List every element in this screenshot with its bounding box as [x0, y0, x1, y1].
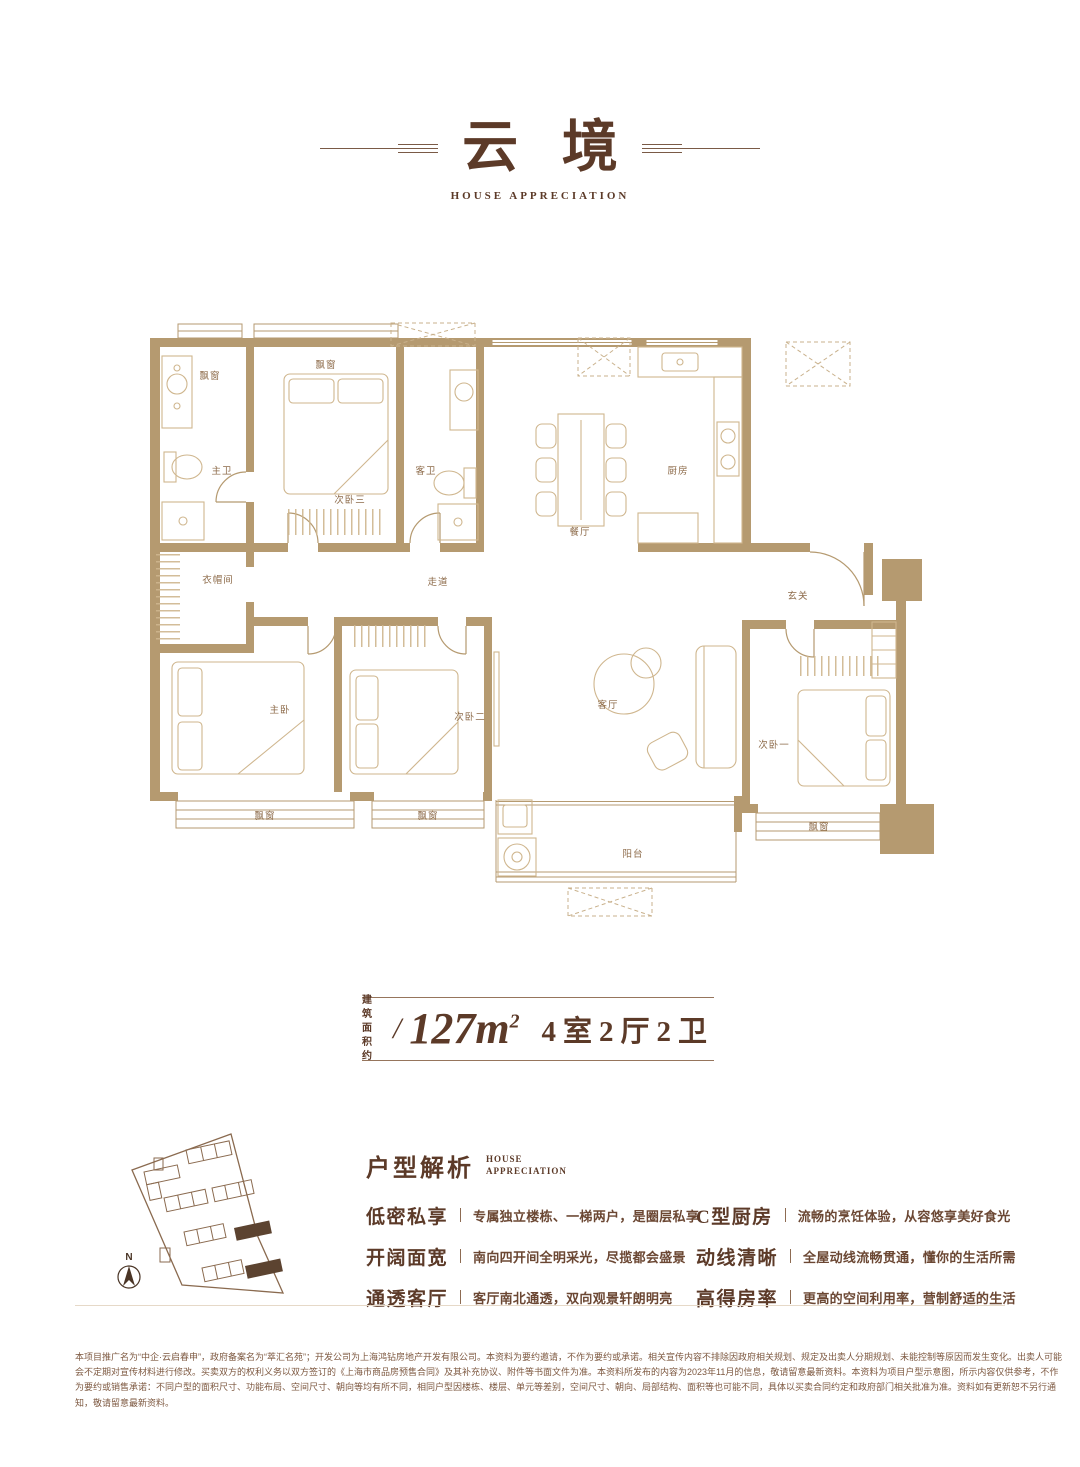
feature-item: C型厨房 流畅的烹饪体验，从容悠享美好食光	[696, 1203, 996, 1227]
page-title: 云境	[462, 118, 661, 180]
title-block: 云境 HOUSE APPRECIATION	[0, 118, 1080, 202]
floor-plan-walls	[150, 338, 934, 854]
title-decoration-left	[320, 144, 438, 153]
room-label-kitchen: 厨房	[667, 465, 688, 477]
triple-bar-icon	[398, 144, 438, 153]
room-label-bay-window: 飘窗	[808, 821, 829, 833]
room-label-guest-bath: 客卫	[415, 465, 436, 477]
analysis-title: 户型解析	[366, 1148, 474, 1183]
disclaimer-line: 会不定期对宣传材料进行修改。买卖双方的权利义务以双方签订的《上海市商品房预售合同…	[75, 1365, 1007, 1380]
site-plan: N	[90, 1120, 308, 1315]
site-buildings-outline	[144, 1141, 254, 1282]
room-label-foyer: 玄关	[787, 590, 808, 602]
site-buildings-highlighted	[234, 1221, 283, 1279]
disclaimer-line: 知，敬请留意最新资料。	[75, 1396, 1007, 1411]
room-label-bedroom1: 次卧一	[758, 739, 790, 751]
room-label-master-bedroom: 主卧	[269, 704, 290, 716]
room-label-bay-window: 飘窗	[199, 370, 220, 382]
door-arcs	[216, 472, 864, 657]
room-label-bay-window: 飘窗	[315, 359, 336, 371]
disclaimer: 本项目推广名为“中企·云启春申”，政府备案名为“萃汇名苑”；开发公司为上海鸿钻房…	[75, 1350, 1007, 1411]
unit-layout: 4室2厅2卫	[541, 1008, 714, 1050]
disclaimer-line: 本项目推广名为“中企·云启春申”，政府备案名为“萃汇名苑”；开发公司为上海鸿钻房…	[75, 1350, 1007, 1365]
area-banner: 建筑 面积约 / 127m2 4室2厅2卫	[362, 997, 714, 1061]
floor-plan-window-lines	[176, 331, 880, 882]
room-label-dining: 餐厅	[569, 526, 590, 538]
feature-item: 开阔面宽 南向四开间全明采光，尽揽都会盛景	[366, 1244, 696, 1268]
room-label-bay-window: 飘窗	[254, 810, 275, 822]
analysis-section: 户型解析 HOUSE APPRECIATION 低密私享 专属独立楼栋、一梯两户…	[366, 1148, 1006, 1309]
disclaimer-line: 为要约或销售承诺：不同户型的面积尺寸、功能布局、空间尺寸、朝向等均有所不同，相同…	[75, 1380, 1007, 1395]
room-label-master-bath: 主卫	[211, 465, 232, 477]
poster-page: 云境 HOUSE APPRECIATION	[0, 0, 1080, 1467]
bottom-divider	[75, 1305, 1005, 1306]
area-value: 127m2	[409, 1007, 519, 1051]
title-decoration-right	[642, 144, 760, 153]
analysis-header: 户型解析 HOUSE APPRECIATION	[366, 1148, 1006, 1183]
room-label-living: 客厅	[597, 699, 618, 711]
feature-item: 动线清晰 全屋动线流畅贯通，懂你的生活所需	[696, 1244, 996, 1268]
feature-item: 低密私享 专属独立楼栋、一梯两户，是圈层私享	[366, 1203, 696, 1227]
floor-plan: 飘窗 飘窗 主卫 次卧三 客卫 餐厅 厨房 衣帽间 走道 玄关 主卧 次卧二 客…	[138, 322, 953, 922]
area-prefix: 建筑 面积约	[362, 994, 381, 1064]
analysis-title-en: HOUSE APPRECIATION	[486, 1154, 567, 1177]
area-slash: /	[393, 1012, 401, 1046]
furniture	[162, 347, 896, 876]
page-subtitle: HOUSE APPRECIATION	[0, 190, 1080, 202]
room-label-bay-window: 飘窗	[417, 810, 438, 822]
room-label-cloakroom: 衣帽间	[202, 574, 234, 586]
room-label-balcony: 阳台	[622, 848, 643, 860]
svg-text:N: N	[125, 1252, 132, 1263]
room-label-bedroom2: 次卧二	[454, 711, 486, 723]
feature-list: 低密私享 专属独立楼栋、一梯两户，是圈层私享 C型厨房 流畅的烹饪体验，从容悠享…	[366, 1203, 1006, 1309]
room-label-corridor: 走道	[427, 576, 448, 588]
floor-plan-windows	[176, 324, 880, 840]
compass-icon: N	[118, 1252, 140, 1288]
room-label-bedroom3: 次卧三	[334, 494, 366, 506]
